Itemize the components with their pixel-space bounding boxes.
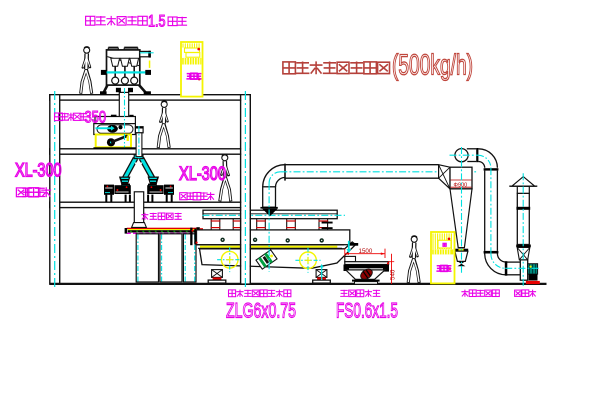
svg-text:540: 540	[390, 269, 397, 280]
svg-text:1.5: 1.5	[148, 13, 166, 31]
svg-text:XL-300: XL-300	[179, 164, 226, 185]
svg-text:Φ900: Φ900	[454, 182, 468, 188]
svg-text:(500kg/h): (500kg/h)	[392, 50, 473, 82]
svg-text:XL-300: XL-300	[15, 161, 62, 182]
svg-text:1500: 1500	[359, 248, 373, 255]
svg-text:350: 350	[85, 108, 107, 126]
svg-text:ZLG6x0.75: ZLG6x0.75	[226, 299, 296, 323]
svg-text:FS0.6x1.5: FS0.6x1.5	[336, 299, 398, 323]
